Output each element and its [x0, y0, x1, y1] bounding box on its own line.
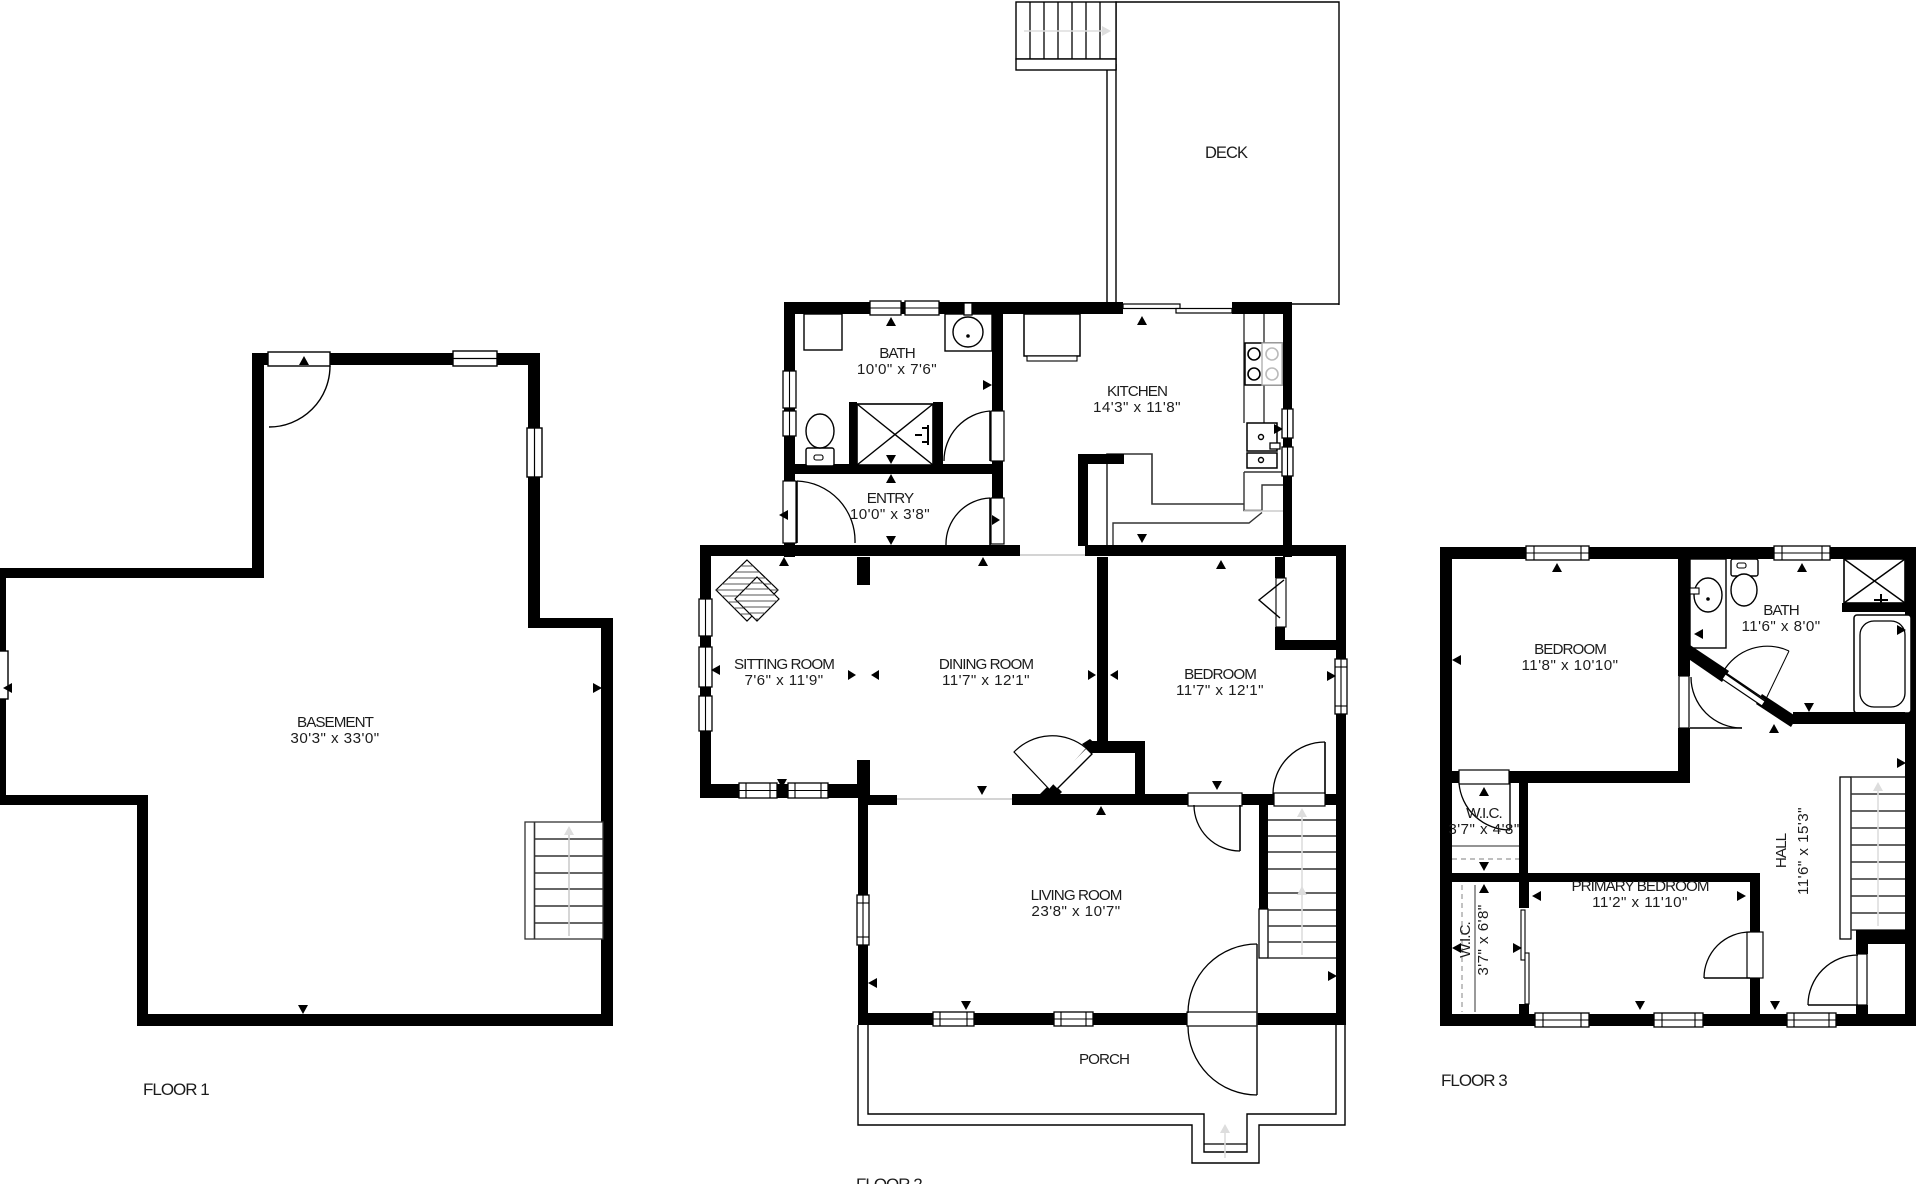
- svg-text:23'8" x 10'7": 23'8" x 10'7": [1031, 903, 1120, 920]
- svg-text:10'0" x 7'6": 10'0" x 7'6": [857, 361, 937, 378]
- svg-text:BEDROOM: BEDROOM: [1534, 641, 1606, 658]
- svg-text:11'7" x 12'1": 11'7" x 12'1": [942, 672, 1030, 689]
- svg-text:11'6" x 8'0": 11'6" x 8'0": [1741, 618, 1820, 635]
- svg-text:FLOOR 3: FLOOR 3: [1441, 1071, 1507, 1090]
- svg-text:FLOOR 2: FLOOR 2: [856, 1175, 922, 1184]
- svg-text:BASEMENT: BASEMENT: [297, 714, 374, 731]
- svg-text:SITTING ROOM: SITTING ROOM: [734, 656, 834, 673]
- svg-text:BATH: BATH: [879, 345, 915, 362]
- svg-text:11'7" x 12'1": 11'7" x 12'1": [1176, 682, 1264, 699]
- svg-text:10'0" x 3'8": 10'0" x 3'8": [850, 506, 930, 523]
- svg-text:HALL: HALL: [1773, 833, 1790, 868]
- svg-text:3'7" x 4'8": 3'7" x 4'8": [1448, 821, 1519, 838]
- svg-text:11'2" x 11'10": 11'2" x 11'10": [1592, 894, 1688, 911]
- svg-text:FLOOR 1: FLOOR 1: [143, 1080, 209, 1099]
- svg-text:W.I.C.: W.I.C.: [1457, 922, 1474, 958]
- svg-text:DECK: DECK: [1205, 144, 1248, 162]
- svg-text:W.I.C.: W.I.C.: [1466, 805, 1502, 822]
- svg-text:7'6" x 11'9": 7'6" x 11'9": [744, 672, 823, 689]
- svg-text:BATH: BATH: [1763, 602, 1799, 619]
- svg-text:PORCH: PORCH: [1079, 1051, 1129, 1068]
- svg-text:ENTRY: ENTRY: [867, 490, 914, 507]
- svg-text:PRIMARY BEDROOM: PRIMARY BEDROOM: [1571, 878, 1708, 895]
- svg-text:LIVING ROOM: LIVING ROOM: [1031, 887, 1122, 904]
- svg-text:KITCHEN: KITCHEN: [1107, 383, 1167, 400]
- svg-text:3'7" x 6'8": 3'7" x 6'8": [1475, 904, 1492, 975]
- svg-text:11'8" x 10'10": 11'8" x 10'10": [1522, 657, 1619, 674]
- svg-text:BEDROOM: BEDROOM: [1184, 666, 1256, 683]
- svg-text:11'6" x 15'3": 11'6" x 15'3": [1795, 807, 1812, 895]
- svg-text:14'3" x 11'8": 14'3" x 11'8": [1093, 399, 1181, 416]
- svg-text:DINING ROOM: DINING ROOM: [939, 656, 1033, 673]
- svg-text:30'3" x 33'0": 30'3" x 33'0": [290, 730, 379, 747]
